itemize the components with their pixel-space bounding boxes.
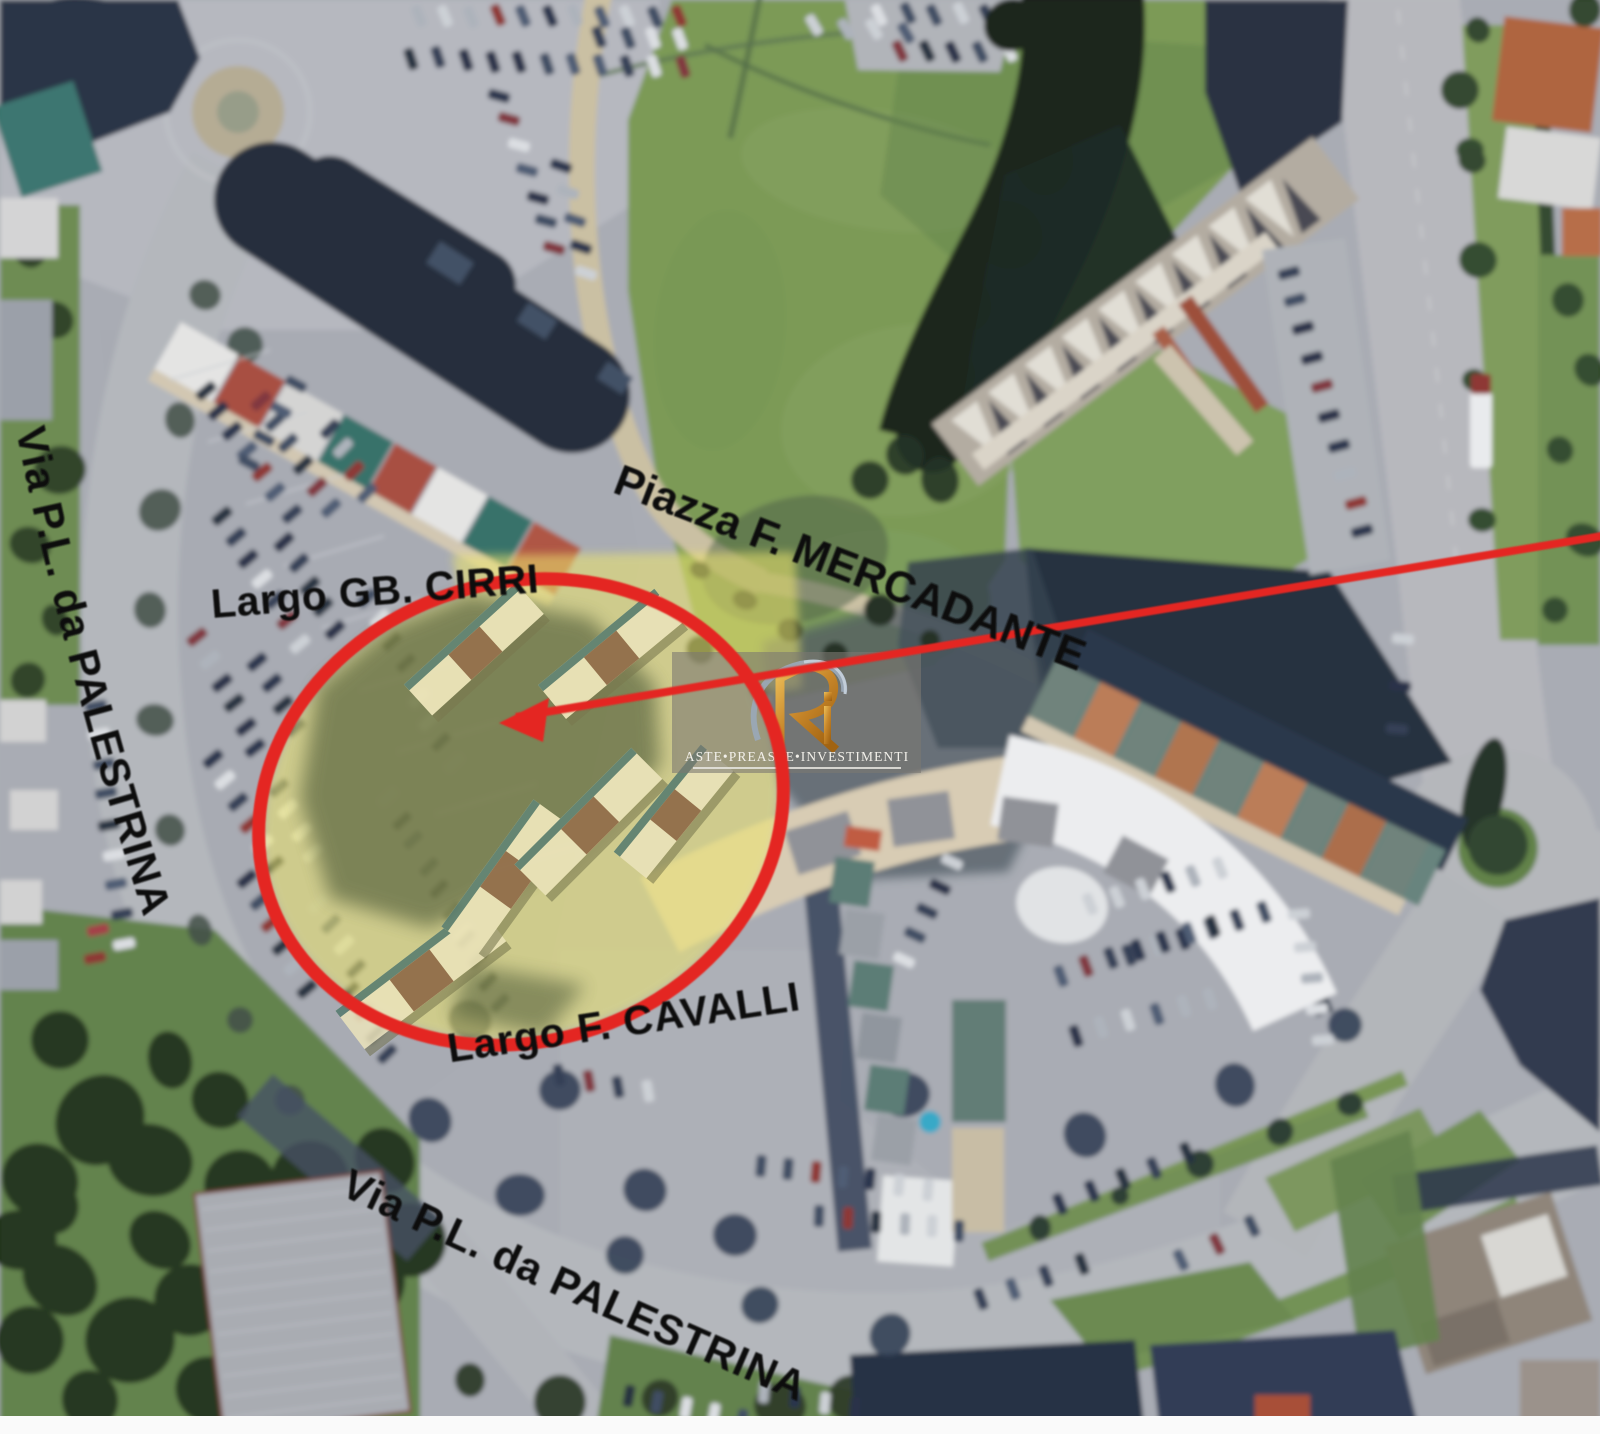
- svg-text:ASTE•PREASTE•INVESTIMENTI: ASTE•PREASTE•INVESTIMENTI: [685, 749, 909, 764]
